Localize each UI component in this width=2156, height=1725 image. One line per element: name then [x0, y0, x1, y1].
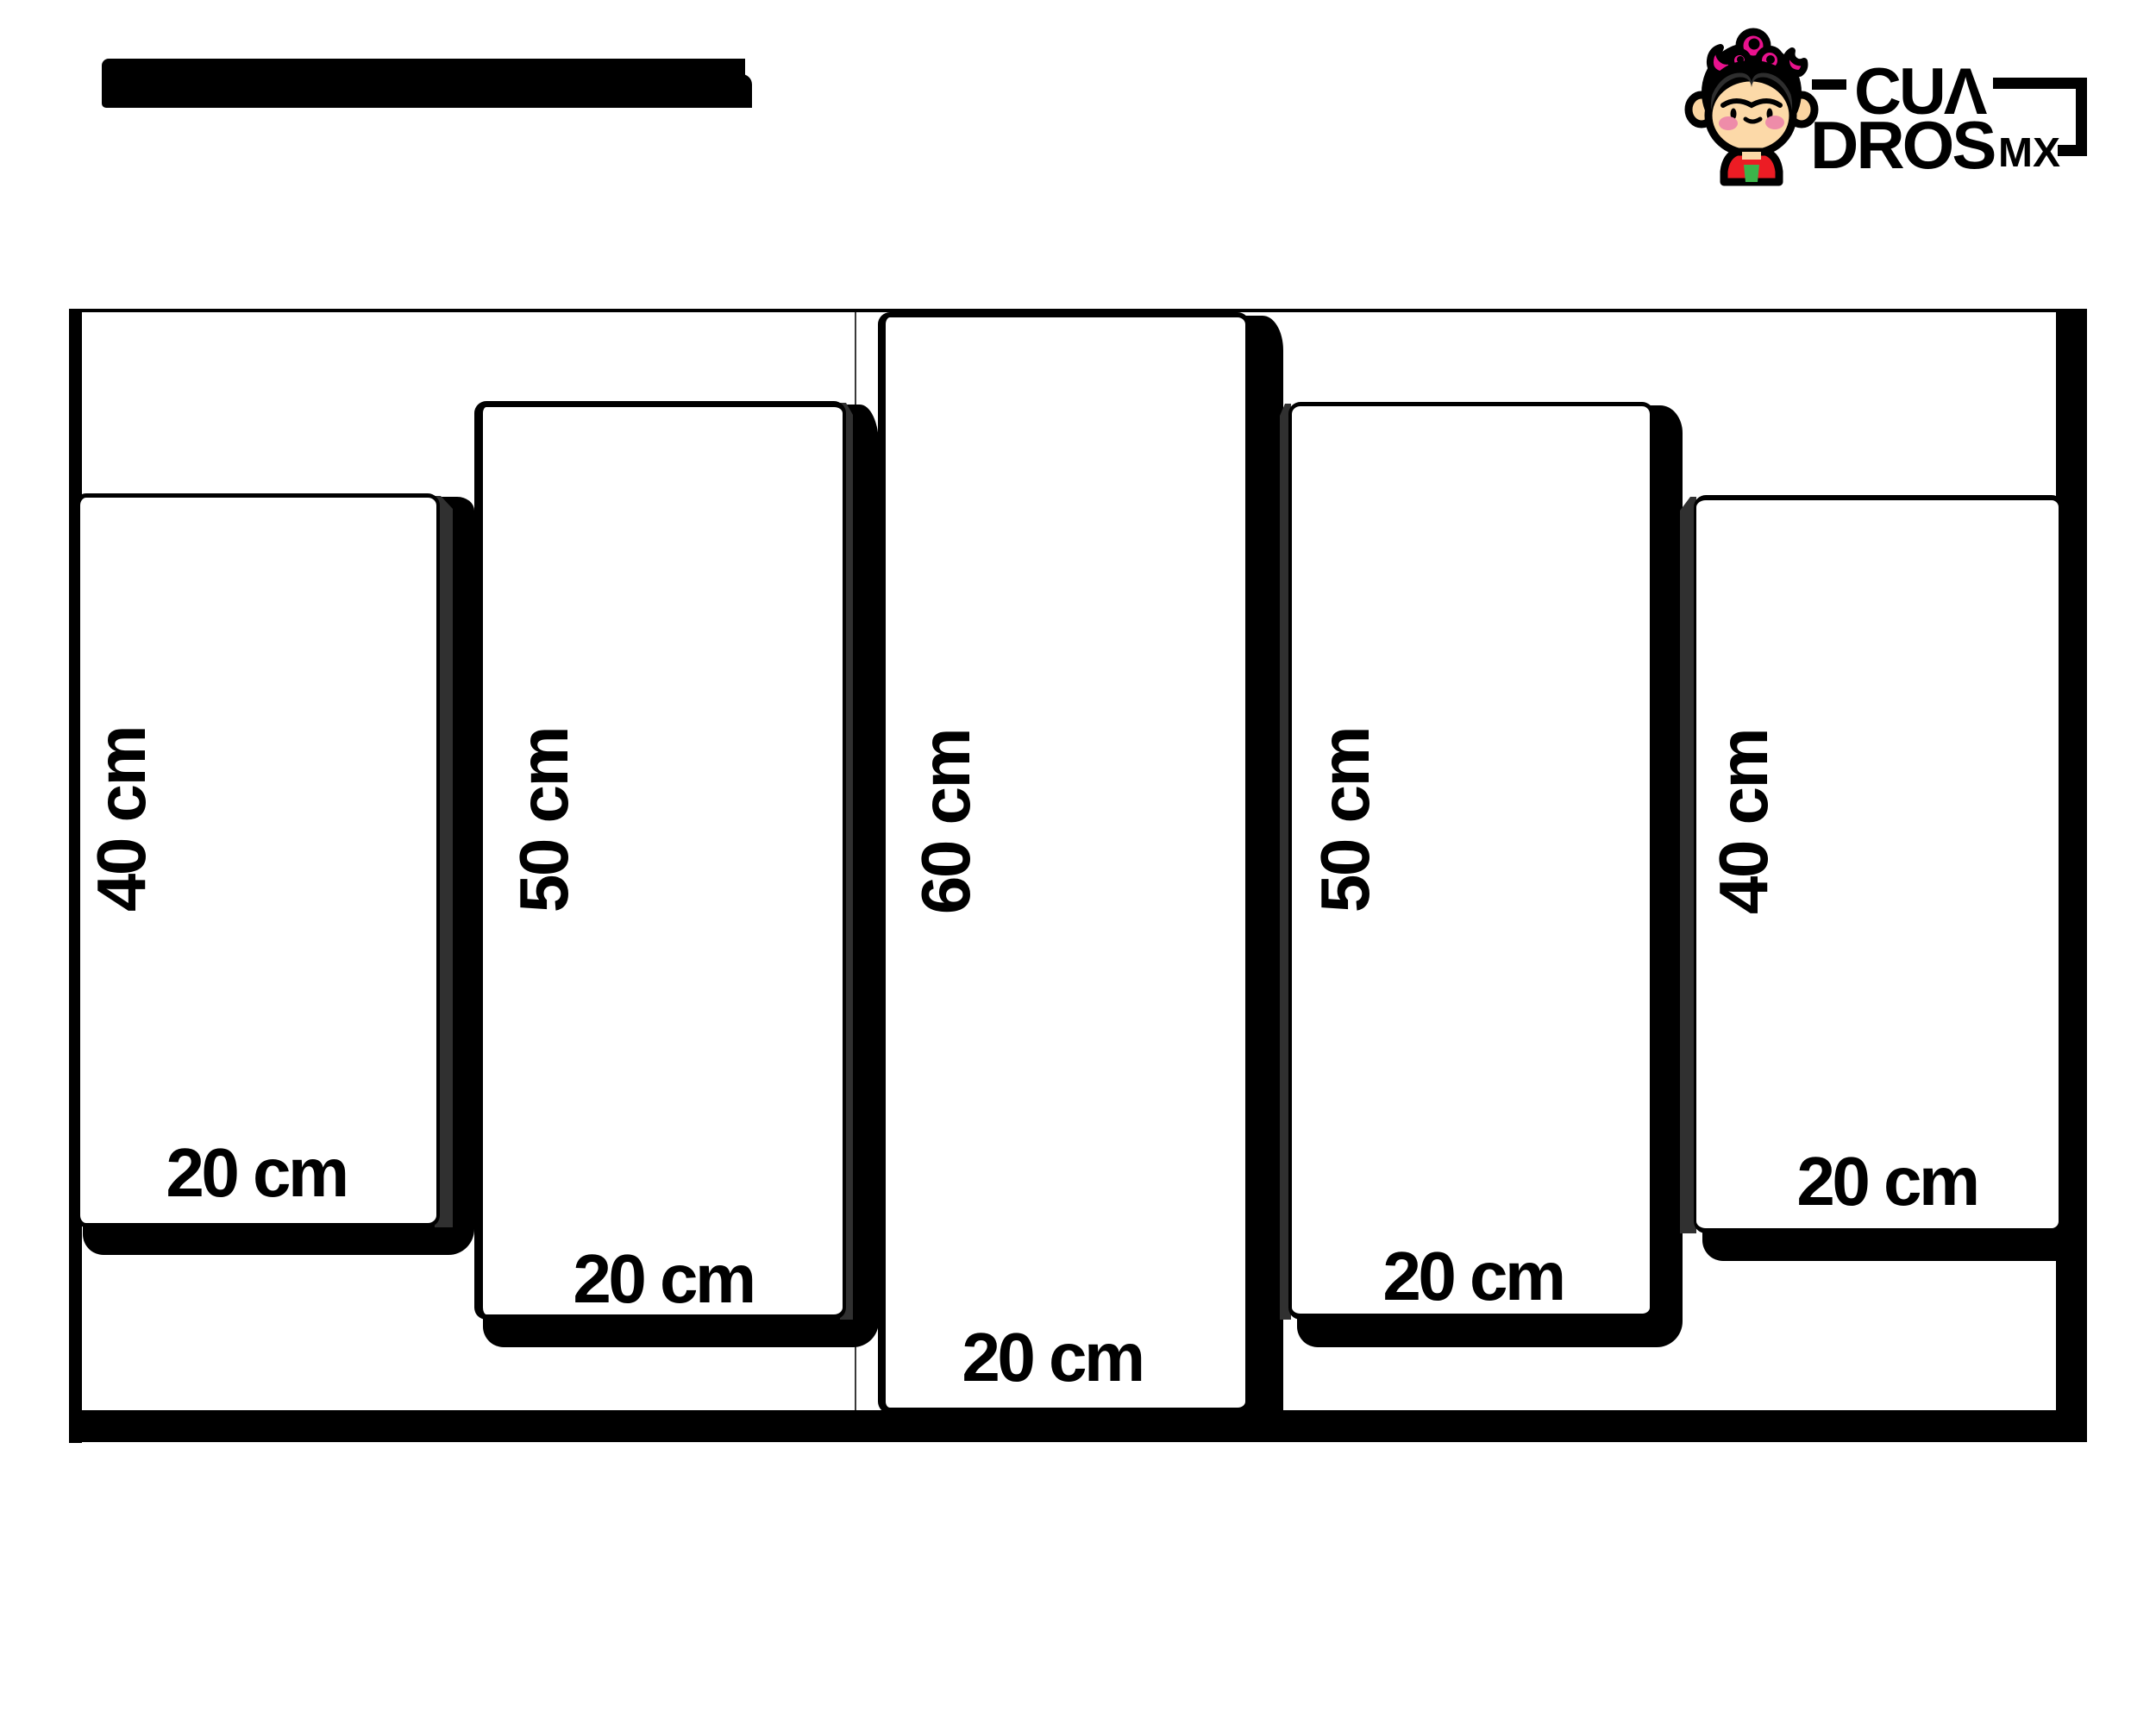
svg-text:DROS: DROS — [1810, 107, 1994, 183]
